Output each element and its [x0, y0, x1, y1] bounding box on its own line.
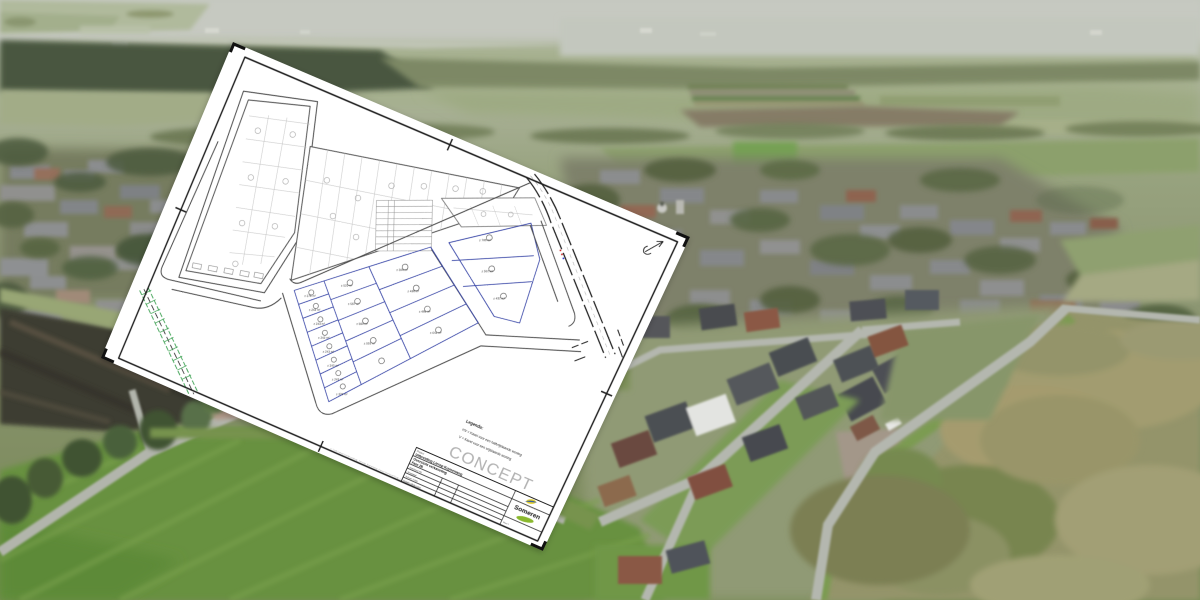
svg-text:± 278 m²: ± 278 m² — [304, 294, 316, 298]
svg-text:± 553 m²: ± 553 m² — [364, 341, 376, 345]
svg-text:± 243 m²: ± 243 m² — [309, 308, 321, 312]
svg-text:± 243 m²: ± 243 m² — [318, 336, 330, 340]
svg-text:± 580 m²: ± 580 m² — [356, 322, 368, 326]
svg-text:± 438 m²: ± 438 m² — [407, 289, 419, 293]
svg-text:± 243 m²: ± 243 m² — [323, 350, 335, 354]
svg-text:± 520 m²: ± 520 m² — [341, 284, 353, 288]
svg-text:± 305 m²: ± 305 m² — [396, 268, 408, 272]
svg-text:± 243 m²: ± 243 m² — [332, 377, 344, 381]
svg-text:± 486 m²: ± 486 m² — [419, 310, 431, 314]
svg-text:± 765 m²: ± 765 m² — [479, 238, 491, 242]
svg-text:± 376 m²: ± 376 m² — [336, 392, 348, 396]
svg-text:± 432 m²: ± 432 m² — [493, 296, 505, 300]
svg-text:± 587 m²: ± 587 m² — [348, 302, 360, 306]
svg-text:± 552 m²: ± 552 m² — [481, 269, 493, 273]
svg-text:± 643 m²: ± 643 m² — [430, 331, 442, 335]
svg-text:± 243 m²: ± 243 m² — [327, 364, 339, 368]
svg-text:± 243 m²: ± 243 m² — [313, 322, 325, 326]
svg-text:Legenda:: Legenda: — [465, 419, 484, 431]
